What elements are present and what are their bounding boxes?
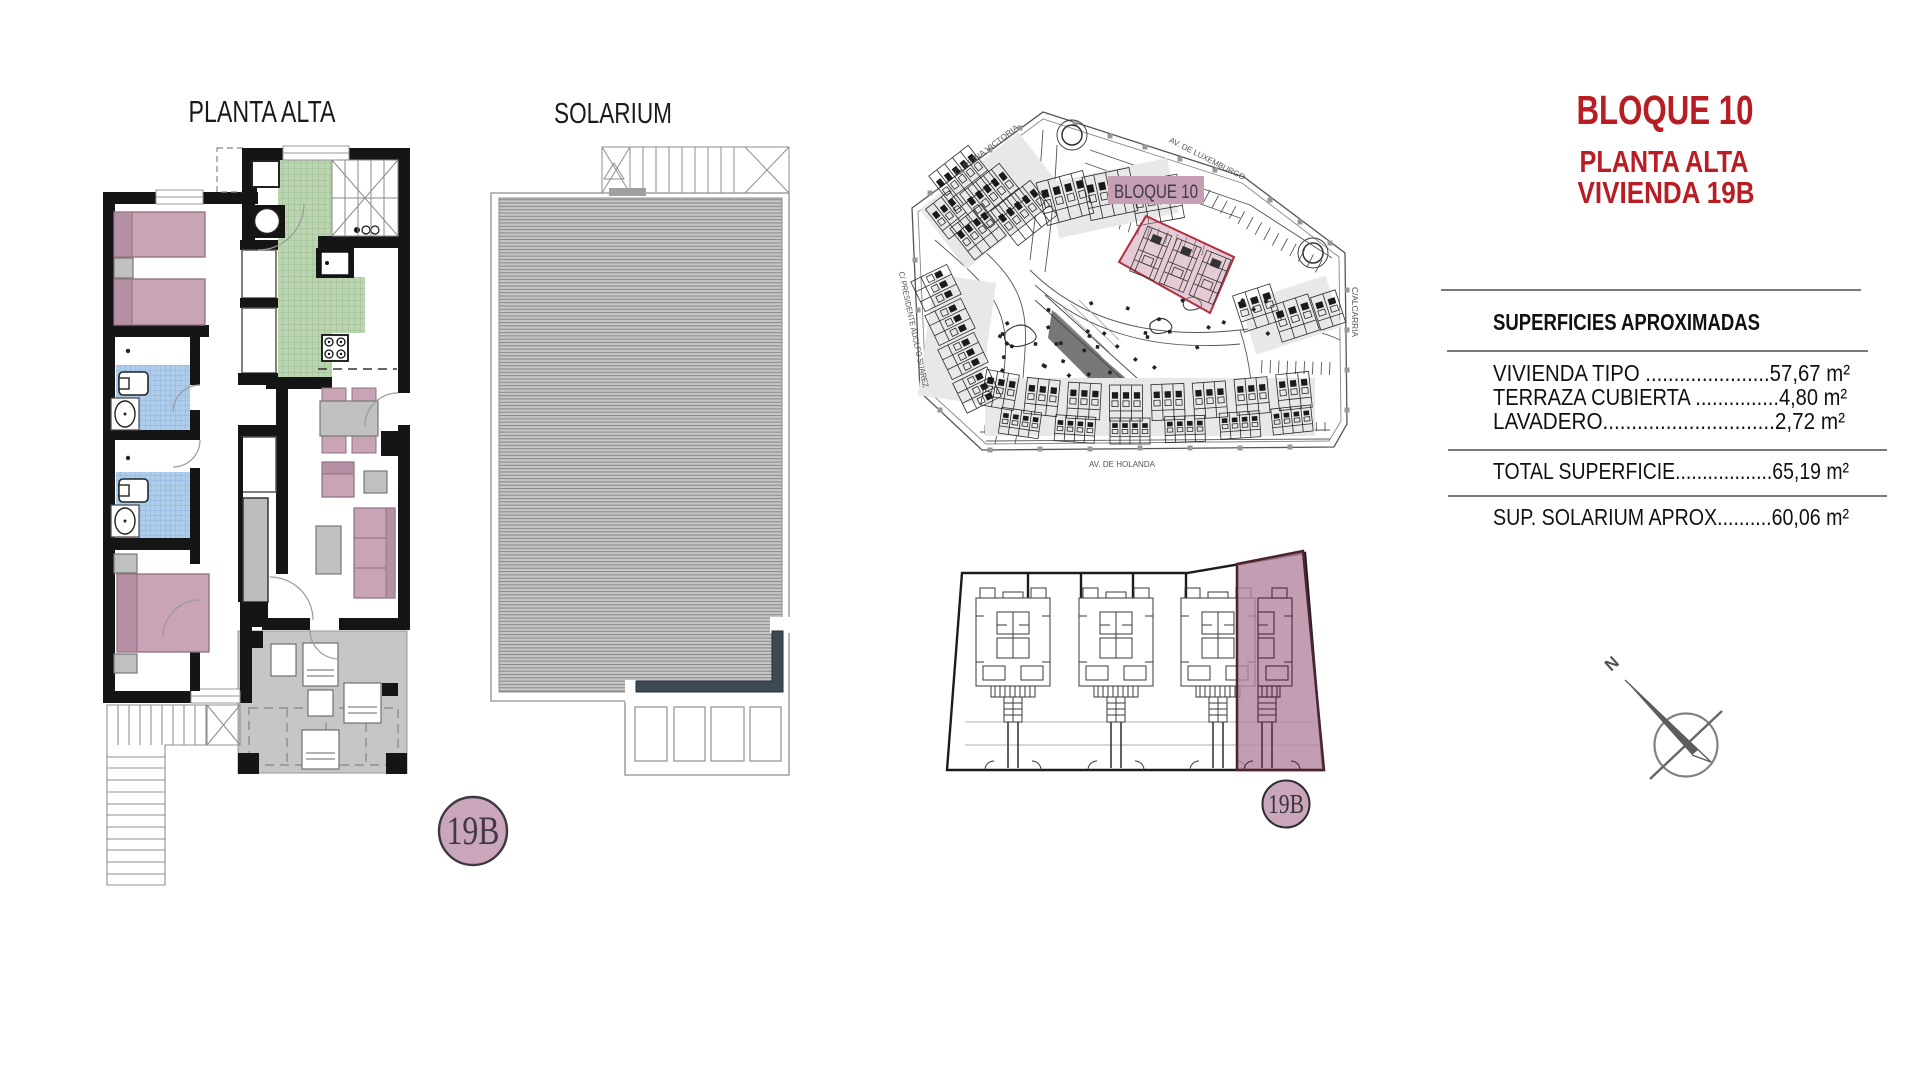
svg-text:LAVADERO......................: LAVADERO..............................2,… xyxy=(1493,408,1845,434)
svg-text:C/ALCARRIA: C/ALCARRIA xyxy=(1350,287,1359,338)
svg-text:SUPERFICIES APROXIMADAS: SUPERFICIES APROXIMADAS xyxy=(1493,309,1760,335)
svg-text:AV. DE HOLANDA: AV. DE HOLANDA xyxy=(1089,460,1156,469)
svg-text:SUP. SOLARIUM APROX..........6: SUP. SOLARIUM APROX..........60,06 m² xyxy=(1493,504,1849,530)
svg-text:PLANTA ALTA: PLANTA ALTA xyxy=(189,94,336,129)
svg-text:VIVIENDA 19B: VIVIENDA 19B xyxy=(1578,175,1755,210)
svg-text:BLOQUE 10: BLOQUE 10 xyxy=(1577,87,1754,133)
svg-text:TOTAL SUPERFICIE..............: TOTAL SUPERFICIE..................65,19 … xyxy=(1493,458,1849,484)
svg-text:BLOQUE 10: BLOQUE 10 xyxy=(1114,182,1198,203)
svg-text:TERRAZA CUBIERTA .............: TERRAZA CUBIERTA ...............4,80 m² xyxy=(1493,384,1847,410)
svg-text:19B: 19B xyxy=(1268,789,1304,819)
svg-text:VIVIENDA TIPO ................: VIVIENDA TIPO ......................57,6… xyxy=(1493,360,1850,386)
svg-text:19B: 19B xyxy=(447,808,500,853)
svg-text:PLANTA ALTA: PLANTA ALTA xyxy=(1580,144,1749,179)
svg-text:SOLARIUM: SOLARIUM xyxy=(554,98,672,130)
